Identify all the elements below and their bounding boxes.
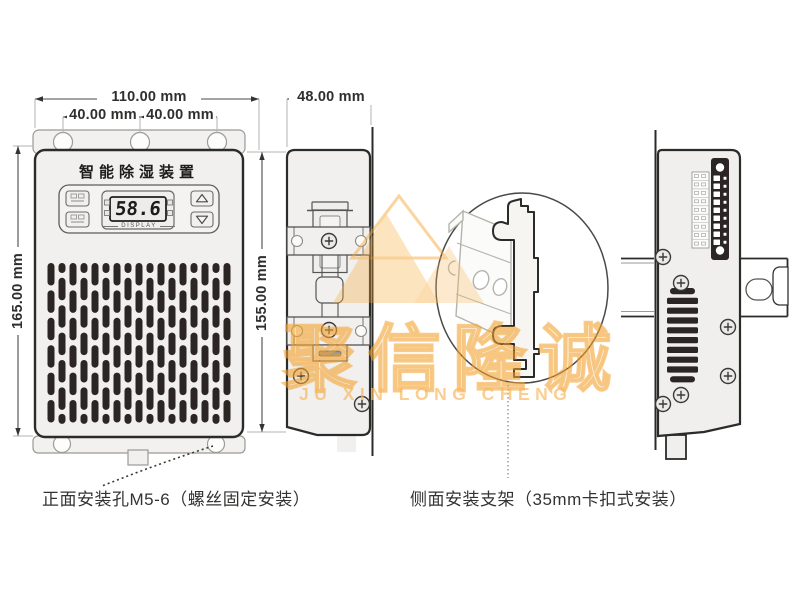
up-arrow-button bbox=[191, 191, 213, 206]
screw-icon bbox=[721, 369, 736, 384]
screw-icon bbox=[656, 250, 671, 265]
terminal-screw-hole bbox=[716, 246, 724, 254]
rail-mounted-view bbox=[621, 130, 788, 459]
set-button-1 bbox=[66, 191, 89, 206]
indicator-led bbox=[168, 200, 173, 205]
display-value: 58.6 bbox=[109, 197, 168, 221]
screw-icon bbox=[674, 276, 689, 291]
dim-hole-spacing-left: 40.00 mm bbox=[67, 107, 139, 123]
technical-drawing-page: 110.00 mm 40.00 mm 40.00 mm 48.00 mm 165… bbox=[0, 0, 800, 600]
screw-icon bbox=[656, 397, 671, 412]
bracket-hole bbox=[292, 236, 303, 247]
side-mount-annotation: 侧面安装支架（35mm卡扣式安装） bbox=[410, 485, 687, 510]
terminal-contacts bbox=[714, 176, 727, 246]
rail-end-notch bbox=[773, 267, 788, 305]
terminal-screw-hole bbox=[716, 163, 724, 171]
front-view bbox=[33, 130, 245, 486]
mounting-hole-top-right bbox=[208, 133, 227, 152]
display-caption: DISPLAY bbox=[103, 223, 175, 230]
dim-width-front: 110.00 mm bbox=[97, 89, 201, 105]
caption-line bbox=[103, 226, 118, 227]
display-caption-text: DISPLAY bbox=[121, 223, 156, 230]
caption-line bbox=[160, 226, 175, 227]
device-title: 智能除湿装置 bbox=[35, 161, 243, 182]
screw-icon bbox=[674, 388, 689, 403]
dim-height-side: 155.00 mm bbox=[254, 249, 274, 337]
indicator-led bbox=[168, 211, 173, 216]
watermark-latin: JU XIN LONG CHENG bbox=[299, 384, 572, 405]
mounting-hole-top-center bbox=[131, 133, 150, 152]
dim-width-side: 48.00 mm bbox=[289, 89, 373, 105]
rail-view-bottom-tab bbox=[666, 435, 686, 459]
dim-hole-spacing-right: 40.00 mm bbox=[144, 107, 216, 123]
down-arrow-button bbox=[191, 212, 213, 227]
mounting-hole-top-left bbox=[54, 133, 73, 152]
screw-icon bbox=[721, 320, 736, 335]
dim-height-front: 165.00 mm bbox=[10, 247, 30, 335]
screw-icon bbox=[322, 234, 337, 249]
front-bottom-tab bbox=[128, 450, 148, 465]
set-button-2 bbox=[66, 212, 89, 227]
indicator-led bbox=[105, 200, 110, 205]
rail-slot bbox=[746, 279, 772, 300]
front-mount-annotation: 正面安装孔M5-6（螺丝固定安装） bbox=[42, 485, 310, 510]
